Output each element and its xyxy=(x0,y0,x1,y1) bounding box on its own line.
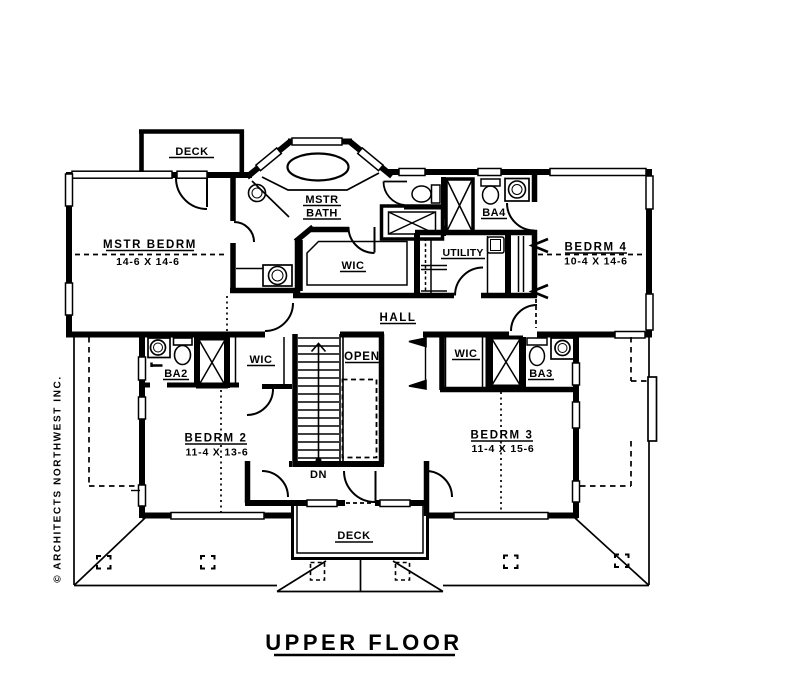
svg-text:WIC: WIC xyxy=(455,348,478,360)
svg-text:MSTR: MSTR xyxy=(305,194,338,206)
svg-text:BEDRM 3: BEDRM 3 xyxy=(471,430,534,442)
svg-text:BEDRM 4: BEDRM 4 xyxy=(565,242,628,254)
svg-text:HALL: HALL xyxy=(379,312,416,324)
svg-text:BA2: BA2 xyxy=(164,368,188,380)
svg-text:MSTR BEDRM: MSTR BEDRM xyxy=(103,239,197,251)
svg-text:UTILITY: UTILITY xyxy=(442,247,483,259)
svg-text:11-4 X 15-6: 11-4 X 15-6 xyxy=(471,443,534,455)
svg-text:DECK: DECK xyxy=(175,146,208,158)
svg-text:14-6 X 14-6: 14-6 X 14-6 xyxy=(116,256,180,268)
svg-text:DN: DN xyxy=(310,469,327,481)
svg-text:© ARCHITECTS NORTHWEST INC.: © ARCHITECTS NORTHWEST INC. xyxy=(53,375,64,582)
svg-text:BA4: BA4 xyxy=(482,207,506,219)
svg-text:10-4 X 14-6: 10-4 X 14-6 xyxy=(564,256,628,268)
svg-text:11-4 X 13-6: 11-4 X 13-6 xyxy=(185,447,248,459)
svg-text:DECK: DECK xyxy=(337,530,370,542)
svg-text:UPPER FLOOR: UPPER FLOOR xyxy=(265,630,462,655)
svg-text:WIC: WIC xyxy=(342,260,365,272)
svg-text:WIC: WIC xyxy=(250,354,273,366)
svg-text:BATH: BATH xyxy=(306,208,338,220)
svg-text:BEDRM 2: BEDRM 2 xyxy=(185,433,248,445)
svg-text:BA3: BA3 xyxy=(529,368,553,380)
svg-text:OPEN: OPEN xyxy=(344,351,380,363)
